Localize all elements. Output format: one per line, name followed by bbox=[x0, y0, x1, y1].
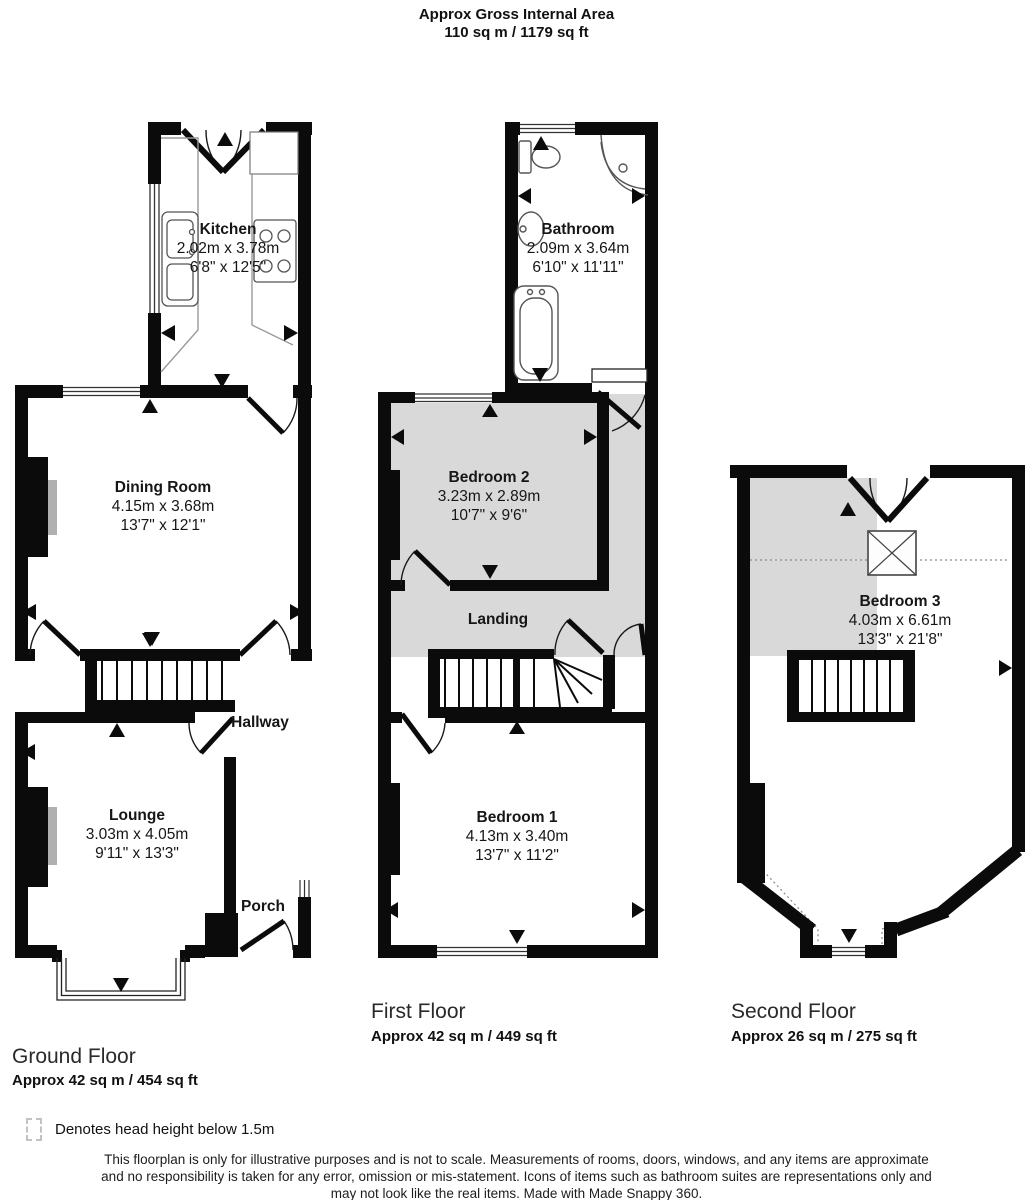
kitchen-name: Kitchen bbox=[177, 220, 280, 239]
disclaimer-line-1: This floorplan is only for illustrative … bbox=[0, 1152, 1033, 1167]
chimney-breast-lounge bbox=[15, 787, 48, 887]
dining-name: Dining Room bbox=[112, 478, 215, 497]
lounge-metric: 3.03m x 4.05m bbox=[86, 825, 189, 844]
lounge-bottom-wall bbox=[15, 945, 311, 962]
skylight-icon bbox=[868, 531, 916, 575]
dining-window bbox=[63, 388, 140, 396]
cupboard bbox=[592, 369, 647, 382]
bedroom3-name: Bedroom 3 bbox=[849, 592, 952, 611]
bathroom-metric: 2.09m x 3.64m bbox=[527, 239, 630, 258]
stairs-second-floor bbox=[787, 650, 915, 722]
porch-wall-block bbox=[205, 913, 238, 957]
first-floor-title: First Floor bbox=[371, 1000, 466, 1024]
dormer-window bbox=[832, 948, 865, 956]
second-floor-title: Second Floor bbox=[731, 1000, 856, 1024]
room-label-lounge: Lounge 3.03m x 4.05m 9'11" x 13'3" bbox=[86, 806, 189, 863]
bedroom1-window bbox=[437, 948, 527, 956]
chimney-bedroom3 bbox=[737, 783, 765, 883]
dining-bottom-wall bbox=[15, 649, 312, 661]
porch-side-window bbox=[300, 880, 309, 897]
ground-floor-title: Ground Floor bbox=[12, 1045, 136, 1069]
kitchen-window bbox=[150, 184, 159, 313]
dining-door-from-kitchen bbox=[248, 398, 297, 433]
lounge-imperial: 9'11" x 13'3" bbox=[86, 844, 189, 863]
dining-top-wall bbox=[15, 385, 312, 398]
room-label-hallway: Hallway bbox=[231, 713, 289, 732]
bedroom2-name: Bedroom 2 bbox=[438, 468, 541, 487]
bedroom3-metric: 4.03m x 6.61m bbox=[849, 611, 952, 630]
lounge-name: Lounge bbox=[86, 806, 189, 825]
bedroom1-name: Bedroom 1 bbox=[466, 808, 569, 827]
disclaimer-line-3: may not look like the real items. Made w… bbox=[0, 1186, 1033, 1200]
page-title: Approx Gross Internal Area bbox=[0, 6, 1033, 23]
bathtub-icon bbox=[514, 286, 558, 380]
room-label-bedroom3: Bedroom 3 4.03m x 6.61m 13'3" x 21'8" bbox=[849, 592, 952, 649]
kitchen-imperial: 6'8" x 12'5" bbox=[177, 258, 280, 277]
bedroom3-imperial: 13'3" x 21'8" bbox=[849, 630, 952, 649]
bathroom-window bbox=[520, 125, 575, 133]
dining-door-right bbox=[240, 621, 290, 655]
bedroom1-imperial: 13'7" x 11'2" bbox=[466, 846, 569, 865]
fireplace-lounge bbox=[48, 807, 57, 865]
dining-imperial: 13'7" x 12'1" bbox=[112, 516, 215, 535]
chimney-breast-dining bbox=[15, 457, 48, 557]
porch-name: Porch bbox=[241, 897, 285, 916]
disclaimer-line-2: and no responsibility is taken for any e… bbox=[0, 1169, 1033, 1184]
room-label-bedroom1: Bedroom 1 4.13m x 3.40m 13'7" x 11'2" bbox=[466, 808, 569, 865]
landing-name: Landing bbox=[468, 610, 528, 629]
fireplace-dining bbox=[48, 480, 57, 535]
floorplan-page: Approx Gross Internal Area 110 sq m / 11… bbox=[0, 0, 1033, 1200]
hallway-divider-wall bbox=[224, 757, 236, 913]
room-label-porch: Porch bbox=[241, 897, 285, 916]
bedroom2-window bbox=[415, 394, 492, 402]
head-height-legend-swatch bbox=[26, 1118, 42, 1141]
bathroom-name: Bathroom bbox=[527, 220, 630, 239]
second-floor-area: Approx 26 sq m / 275 sq ft bbox=[731, 1028, 917, 1045]
head-height-legend-text: Denotes head height below 1.5m bbox=[55, 1121, 274, 1138]
hallway-name: Hallway bbox=[231, 713, 289, 732]
room-label-kitchen: Kitchen 2.02m x 3.78m 6'8" x 12'5" bbox=[177, 220, 280, 277]
second-floor-plan bbox=[730, 465, 1025, 958]
chimney-bedroom2 bbox=[391, 470, 400, 560]
chimney-bedroom1 bbox=[391, 783, 400, 875]
bedroom2-imperial: 10'7" x 9'6" bbox=[438, 506, 541, 525]
room-label-dining: Dining Room 4.15m x 3.68m 13'7" x 12'1" bbox=[112, 478, 215, 535]
stairs-first-floor bbox=[428, 649, 615, 718]
kitchen-metric: 2.02m x 3.78m bbox=[177, 239, 280, 258]
bedroom1-door bbox=[402, 714, 445, 753]
bedroom2-metric: 3.23m x 2.89m bbox=[438, 487, 541, 506]
room-label-bathroom: Bathroom 2.09m x 3.64m 6'10" x 11'11" bbox=[527, 220, 630, 277]
page-subtitle: 110 sq m / 1179 sq ft bbox=[0, 24, 1033, 41]
porch-door bbox=[241, 921, 293, 950]
bathroom-imperial: 6'10" x 11'11" bbox=[527, 258, 630, 277]
kitchen-unit bbox=[250, 132, 298, 174]
first-floor-area: Approx 42 sq m / 449 sq ft bbox=[371, 1028, 557, 1045]
bedroom1-metric: 4.13m x 3.40m bbox=[466, 827, 569, 846]
room-label-landing: Landing bbox=[468, 610, 528, 629]
lounge-door bbox=[189, 718, 233, 753]
dining-door-left bbox=[30, 621, 80, 655]
room-label-bedroom2: Bedroom 2 3.23m x 2.89m 10'7" x 9'6" bbox=[438, 468, 541, 525]
ground-floor-area: Approx 42 sq m / 454 sq ft bbox=[12, 1072, 198, 1089]
dining-metric: 4.15m x 3.68m bbox=[112, 497, 215, 516]
shower-icon bbox=[601, 135, 648, 195]
